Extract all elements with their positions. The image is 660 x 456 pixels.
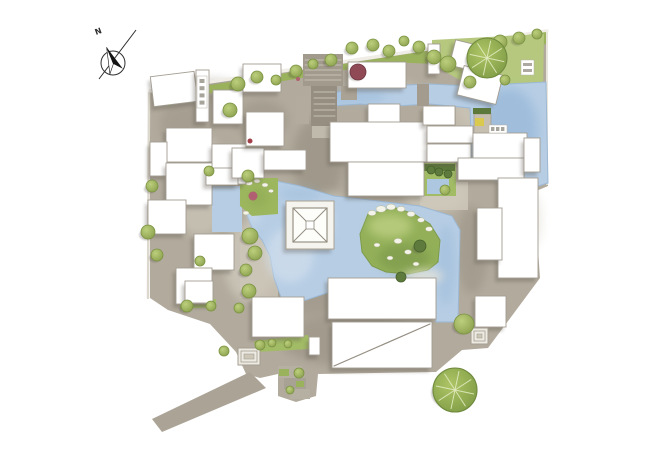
site-plan-drawing [0, 0, 660, 456]
building-roof [475, 296, 506, 327]
tree-canopy [290, 65, 302, 77]
tree-canopy [399, 36, 409, 46]
tree-canopy [444, 170, 452, 178]
building [325, 278, 436, 323]
tree [255, 340, 265, 350]
tree-canopy [296, 77, 300, 81]
tree-canopy [350, 64, 366, 80]
tree-canopy [383, 45, 395, 57]
building [163, 128, 212, 166]
flower-bush [249, 192, 258, 201]
rock [376, 206, 386, 213]
tree-canopy [396, 272, 406, 282]
pavilion-finial [306, 221, 314, 229]
tree-canopy [308, 59, 318, 69]
tiny-label [197, 76, 207, 108]
tree-canopy [440, 185, 450, 195]
tree-canopy [427, 50, 441, 64]
rock [407, 211, 415, 216]
tree-canopy [141, 225, 155, 239]
tree-canopy [513, 32, 525, 44]
tree [234, 303, 244, 313]
tiny-label-glyph [501, 127, 504, 131]
tree [206, 301, 216, 311]
tree-canopy [367, 39, 379, 51]
pavilion [283, 201, 334, 253]
tree-canopy [414, 240, 426, 252]
tiny-label-glyph [200, 101, 205, 105]
tree [286, 386, 294, 394]
rock [405, 250, 412, 255]
building-roof [185, 281, 213, 303]
building-roof [473, 133, 527, 159]
building-roof [150, 71, 197, 106]
water-shading-4 [437, 225, 455, 305]
rock [243, 211, 249, 215]
tiny-label-glyph [491, 127, 494, 131]
building [147, 71, 198, 110]
tiny-label-box [521, 60, 534, 75]
rock [374, 243, 380, 247]
island-shading-2 [368, 214, 412, 238]
fountain-basin [244, 354, 254, 359]
tree-canopy [219, 346, 229, 356]
tree-canopy [268, 339, 276, 347]
fountain [238, 348, 260, 365]
rock [413, 262, 419, 266]
tree [365, 39, 379, 53]
tree [284, 340, 292, 348]
tree [344, 42, 358, 56]
building [261, 150, 306, 174]
tree-canopy [440, 56, 456, 72]
building [472, 296, 506, 331]
building [521, 138, 540, 176]
tree [500, 75, 510, 85]
steps-green-2 [296, 381, 304, 387]
tree-canopy [242, 170, 254, 182]
tree-canopy [255, 340, 265, 350]
tree-canopy [242, 228, 258, 244]
building-roof [328, 278, 436, 319]
tree [294, 368, 304, 378]
tree-canopy [249, 192, 258, 201]
tree-canopy [464, 76, 476, 88]
boundary-walls-2 [148, 93, 149, 298]
tiny-label-glyph [523, 69, 532, 72]
dark-bush [427, 166, 435, 174]
pool-west [212, 186, 242, 232]
dark-bush [444, 170, 452, 178]
tiny-label-glyph [200, 93, 205, 97]
tree-canopy [206, 301, 216, 311]
building-roof [524, 138, 540, 172]
tree-canopy [234, 303, 244, 313]
pier-hedge [473, 108, 491, 114]
rock [394, 238, 402, 243]
tree [271, 75, 281, 85]
tree-canopy [500, 75, 510, 85]
tiny-label [521, 60, 534, 75]
fountain-basin [477, 334, 482, 338]
building-roof [368, 104, 400, 124]
steps-green-1 [279, 369, 289, 376]
accent-canopy [475, 118, 484, 126]
building [474, 208, 502, 264]
building-roof [330, 122, 428, 162]
building-roof [458, 158, 524, 180]
tree-canopy [294, 368, 304, 378]
building-roof [423, 106, 455, 125]
rock [418, 218, 425, 223]
tree [268, 339, 276, 347]
tree-canopy [242, 284, 256, 298]
building-roof [166, 128, 212, 162]
tree-canopy [346, 42, 358, 54]
tree [308, 59, 318, 69]
tree-canopy [240, 264, 252, 276]
building [345, 162, 424, 200]
rock [426, 227, 433, 232]
tree-canopy [454, 314, 474, 334]
building-roof [348, 162, 424, 196]
bridge [417, 84, 429, 106]
tiny-label-glyph [200, 79, 205, 83]
tree [219, 346, 229, 356]
tree-canopy [427, 166, 435, 174]
tiny-label [489, 125, 507, 133]
layer-compass [99, 30, 136, 79]
tree-canopy [181, 300, 193, 312]
building-roof [477, 208, 502, 260]
rock [387, 256, 393, 260]
gate-side-west [296, 96, 309, 124]
building-roof [264, 150, 306, 170]
building-roof [498, 178, 538, 278]
tree-canopy [271, 75, 281, 85]
flower-bush [296, 77, 300, 81]
fountain [471, 328, 488, 344]
building [243, 112, 284, 150]
tree [195, 256, 205, 266]
tree-canopy [195, 256, 205, 266]
tree-canopy [286, 386, 294, 394]
tree [399, 36, 409, 46]
ground-path-southwest [152, 372, 266, 432]
tree-canopy [284, 340, 292, 348]
building [249, 297, 304, 341]
tree [204, 166, 214, 176]
site-plan: N [0, 0, 660, 456]
tree-canopy [325, 54, 337, 66]
tree-canopy [435, 168, 443, 176]
tiny-label-glyph [496, 127, 499, 131]
rock [397, 206, 405, 211]
tree-canopy [223, 103, 237, 117]
tiny-label-glyph [523, 63, 532, 66]
tree-canopy [248, 246, 262, 260]
tree-canopy [231, 77, 245, 91]
building-roof [309, 337, 320, 355]
tree-canopy [251, 71, 263, 83]
large-tree [431, 368, 477, 412]
flower-bush [248, 139, 253, 144]
tree [440, 185, 450, 195]
layer-pavilion [283, 201, 334, 253]
tree-canopy [204, 166, 214, 176]
tree-canopy [146, 180, 158, 192]
building-roof [427, 126, 473, 143]
rock [269, 189, 274, 192]
dark-bush [396, 272, 406, 282]
dark-bush [435, 168, 443, 176]
rock [262, 183, 268, 187]
rock [387, 204, 396, 210]
building [327, 122, 428, 166]
tiny-label-glyph [200, 86, 205, 90]
tree-canopy [532, 29, 542, 39]
tree [532, 29, 542, 39]
building-roof [252, 297, 304, 337]
water-shading-8 [280, 188, 320, 200]
tree-canopy [413, 41, 425, 53]
tree-canopy [151, 249, 163, 261]
compass-rose [99, 30, 136, 79]
tree-canopy [248, 139, 253, 144]
rock [368, 210, 376, 215]
